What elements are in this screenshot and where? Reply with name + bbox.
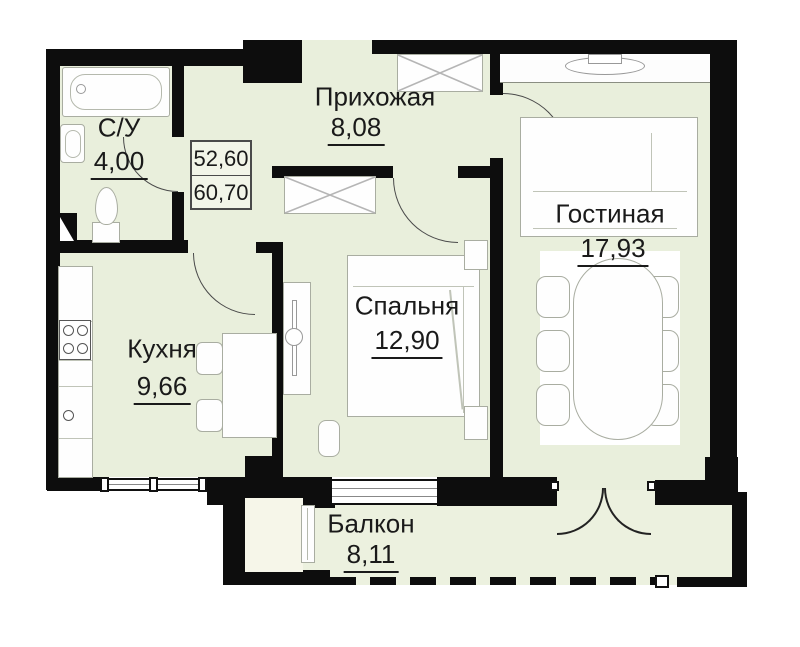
stove-burner [77,343,88,354]
toilet-bowl [95,187,118,225]
tv-icon [285,328,303,346]
wall-segment [490,158,503,477]
balcony-closet-interior [245,498,303,572]
closet-door-slat [307,508,308,560]
stove-burner [77,325,88,336]
toilet-tank [92,222,120,243]
room-area-hallway: 8,08 [328,112,385,146]
bedroom-wardrobe [284,176,376,214]
wall-segment [437,477,557,506]
sofa-chaise-line [651,133,652,191]
wall-segment [677,577,732,587]
room-name-hallway: Прихожая [315,82,435,113]
wall-segment [655,480,735,505]
balcony-post [655,575,669,588]
dining-chair [536,276,570,318]
window-mullion [198,477,207,492]
window-mullion [100,477,109,492]
area-summary-top: 52,60 [192,142,250,175]
window-glass-line [332,488,437,489]
wall-entrance-pier [243,40,302,83]
dining-chair [536,384,570,426]
stove [59,320,91,360]
wall-segment [46,49,243,66]
floor-plan: Прихожая 8,08 С/У 4,00 Кухня 9,66 Спальн… [0,0,800,647]
bedroom-stool [318,420,340,457]
kitchen-chair [196,342,223,375]
stove-burner [63,325,74,336]
room-area-kitchen: 9,66 [134,371,191,405]
room-area-living: 17,93 [577,233,648,267]
window-mullion [149,477,158,492]
room-name-living: Гостиная [555,199,664,230]
nightstand [464,240,488,270]
bathroom-sink [60,124,85,163]
sofa-seat-line [533,191,687,192]
balcony-door-jamb [647,481,656,491]
counter-divider [59,386,92,387]
area-summary-box: 52,60 60,70 [190,140,252,210]
wall-balcony-closet [223,485,245,585]
window-glass-line [332,496,437,497]
bed-blanket-edge [463,286,464,413]
bathtub [62,67,170,117]
area-summary-bottom: 60,70 [192,175,250,209]
room-name-bedroom: Спальня [355,291,459,322]
bathtub-drain [76,84,86,94]
room-area-bedroom: 12,90 [371,325,442,359]
room-area-bathroom: 4,00 [91,146,148,180]
vent-shaft-triangle [60,217,74,241]
wall-segment [245,456,283,477]
wall-balcony-closet [245,570,330,585]
kitchen-counter [58,266,93,478]
vent-shaft [58,213,77,243]
sink-basin [65,130,81,158]
room-name-balcony: Балкон [327,509,414,540]
tv-stand [588,54,622,64]
room-area-balcony: 8,11 [344,539,399,573]
wall-segment [172,63,184,137]
dining-table [573,258,663,440]
counter-divider [59,438,92,439]
kitchen-chair [196,399,223,432]
room-name-kitchen: Кухня [127,334,197,365]
balcony-rail-dashed [330,577,655,585]
dining-chair [536,330,570,372]
tv-console [500,54,710,83]
room-name-bathroom: С/У [98,113,141,144]
bed-pillow-line [353,286,474,287]
counter-divider [59,360,92,361]
kitchen-sink [63,410,74,421]
bedroom-window [332,479,437,505]
wall-balcony-right [732,492,747,587]
balcony-closet-door [301,505,315,563]
wall-segment [503,40,737,54]
wall-segment [710,40,737,457]
wall-segment [47,477,100,491]
stove-burner [63,343,74,354]
nightstand [464,406,488,440]
tv-dresser [283,282,311,395]
balcony-door-jamb [550,481,559,491]
wardrobe-cross-icon [285,177,375,213]
floor-entrance-gap [302,40,372,63]
wall-segment [372,40,503,54]
kitchen-table [222,333,277,438]
